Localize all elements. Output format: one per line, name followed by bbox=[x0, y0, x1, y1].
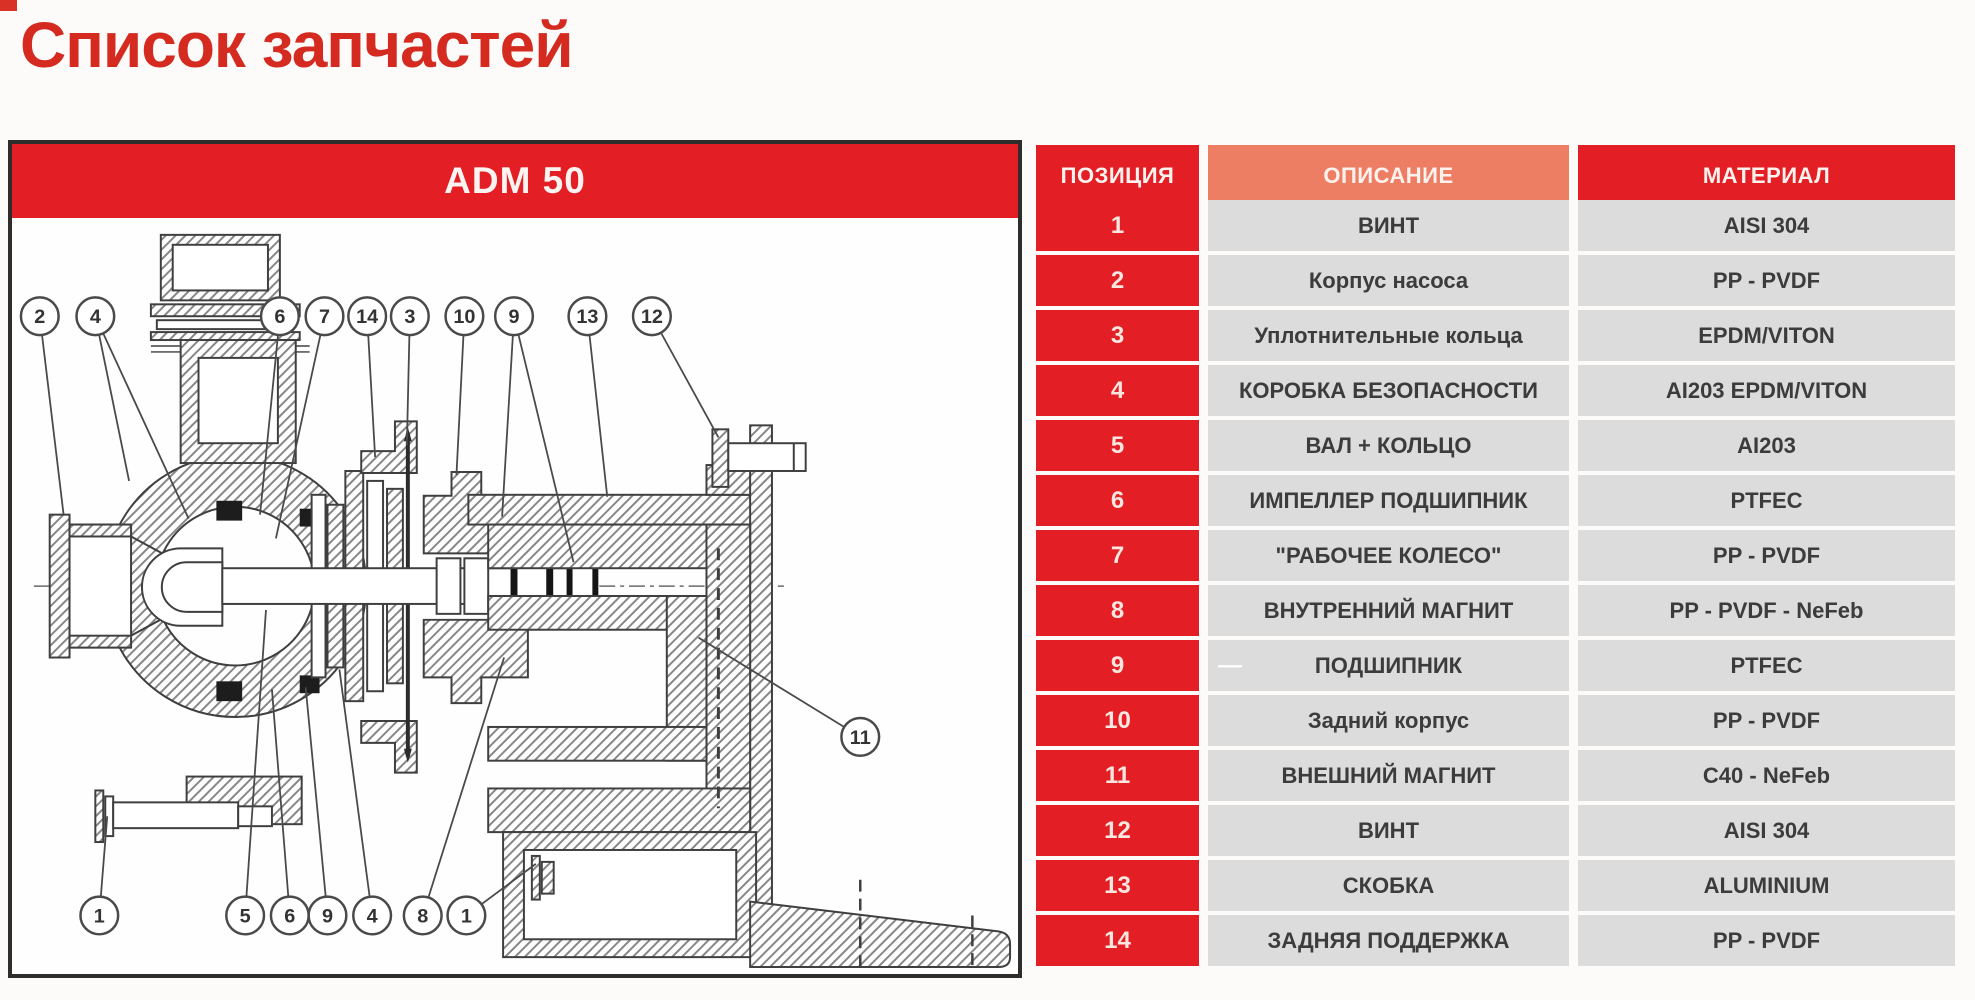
svg-text:10: 10 bbox=[453, 306, 475, 328]
position-cell: 7 bbox=[1036, 530, 1199, 581]
description-cell: ВНЕШНИЙ МАГНИТ bbox=[1208, 750, 1569, 801]
material-cell: PTFEC bbox=[1578, 640, 1955, 691]
material-cell: PTFEC bbox=[1578, 475, 1955, 526]
callout-10: 10 bbox=[446, 297, 484, 475]
description-cell: Задний корпус bbox=[1208, 695, 1569, 746]
pump-model-label: ADM 50 bbox=[444, 160, 586, 202]
callout-12: 12 bbox=[633, 297, 718, 437]
svg-text:2: 2 bbox=[34, 306, 45, 328]
material-cell: AI203 EPDM/VITON bbox=[1578, 365, 1955, 416]
svg-text:12: 12 bbox=[641, 306, 663, 328]
material-cell: PP - PVDF bbox=[1578, 255, 1955, 306]
svg-text:6: 6 bbox=[274, 306, 285, 328]
position-cell: 10 bbox=[1036, 695, 1199, 746]
description-cell: ВИНТ bbox=[1208, 200, 1569, 251]
description-cell: Уплотнительные кольца bbox=[1208, 310, 1569, 361]
position-cell: 8 bbox=[1036, 585, 1199, 636]
callout-2: 2 bbox=[21, 297, 64, 514]
svg-text:3: 3 bbox=[404, 306, 415, 328]
svg-text:1: 1 bbox=[461, 905, 472, 927]
callout-13: 13 bbox=[569, 297, 608, 496]
position-cell: 5 bbox=[1036, 420, 1199, 471]
material-cell: EPDM/VITON bbox=[1578, 310, 1955, 361]
description-cell: "РАБОЧЕЕ КОЛЕСО" bbox=[1208, 530, 1569, 581]
callout-9: 9 bbox=[306, 687, 347, 934]
corner-mark bbox=[0, 0, 17, 11]
parts-table: ПОЗИЦИЯ ОПИСАНИЕ МАТЕРИАЛ 1ВИНТAISI 3042… bbox=[1036, 145, 1955, 966]
position-cell: 6 bbox=[1036, 475, 1199, 526]
diagram-panel-body: 24671431091312111569481 bbox=[12, 218, 1018, 974]
position-cell: 11 bbox=[1036, 750, 1199, 801]
material-cell: AI203 bbox=[1578, 420, 1955, 471]
material-cell: C40 - NeFeb bbox=[1578, 750, 1955, 801]
position-cell: 1 bbox=[1036, 200, 1199, 251]
material-cell: PP - PVDF - NeFeb bbox=[1578, 585, 1955, 636]
svg-text:7: 7 bbox=[319, 306, 330, 328]
position-cell: 12 bbox=[1036, 805, 1199, 856]
description-cell: ИМПЕЛЛЕР ПОДШИПНИК bbox=[1208, 475, 1569, 526]
diagram-panel-header: ADM 50 bbox=[12, 144, 1018, 218]
column-header-description: ОПИСАНИЕ bbox=[1208, 145, 1569, 207]
svg-text:6: 6 bbox=[284, 905, 295, 927]
svg-text:14: 14 bbox=[356, 306, 378, 328]
description-cell: ПОДШИПНИК— bbox=[1208, 640, 1569, 691]
description-cell: Корпус насоса bbox=[1208, 255, 1569, 306]
callout-4: 4 bbox=[339, 669, 391, 934]
column-header-material: МАТЕРИАЛ bbox=[1578, 145, 1955, 207]
position-cell: 4 bbox=[1036, 365, 1199, 416]
svg-text:8: 8 bbox=[417, 905, 428, 927]
page-title: Список запчастей bbox=[20, 8, 573, 82]
inlet-barrel bbox=[70, 525, 132, 648]
svg-text:4: 4 bbox=[90, 306, 101, 328]
description-cell: КОРОБКА БЕЗОПАСНОСТИ bbox=[1208, 365, 1569, 416]
description-cell: СКОБКА bbox=[1208, 860, 1569, 911]
diagram-panel: ADM 50 bbox=[8, 140, 1022, 978]
svg-text:5: 5 bbox=[240, 905, 251, 927]
row-marker: — bbox=[1218, 652, 1242, 680]
material-cell: ALUMINIUM bbox=[1578, 860, 1955, 911]
mounting-foot bbox=[750, 902, 1010, 967]
inlet-flange bbox=[50, 515, 70, 658]
material-cell: PP - PVDF bbox=[1578, 695, 1955, 746]
position-cell: 14 bbox=[1036, 915, 1199, 966]
material-cell: AISI 304 bbox=[1578, 200, 1955, 251]
svg-text:4: 4 bbox=[367, 905, 378, 927]
svg-text:1: 1 bbox=[94, 905, 105, 927]
material-cell: PP - PVDF bbox=[1578, 530, 1955, 581]
description-cell: ЗАДНЯЯ ПОДДЕРЖКА bbox=[1208, 915, 1569, 966]
page: { "page": { "title": "Список запчастей" … bbox=[0, 0, 1975, 1000]
pump-cross-section-diagram: 24671431091312111569481 bbox=[12, 218, 1018, 974]
description-cell: ВНУТРЕННИЙ МАГНИТ bbox=[1208, 585, 1569, 636]
callout-14: 14 bbox=[348, 297, 386, 457]
column-header-position: ПОЗИЦИЯ bbox=[1036, 145, 1199, 207]
description-cell: ВАЛ + КОЛЬЦО bbox=[1208, 420, 1569, 471]
svg-text:13: 13 bbox=[576, 306, 598, 328]
callout-5: 5 bbox=[226, 610, 266, 934]
svg-text:11: 11 bbox=[850, 727, 871, 749]
position-cell: 9 bbox=[1036, 640, 1199, 691]
description-cell: ВИНТ bbox=[1208, 805, 1569, 856]
material-cell: PP - PVDF bbox=[1578, 915, 1955, 966]
bracket-top-beam bbox=[468, 495, 756, 525]
svg-text:9: 9 bbox=[322, 905, 333, 927]
material-cell: AISI 304 bbox=[1578, 805, 1955, 856]
position-cell: 13 bbox=[1036, 860, 1199, 911]
adapter-bolt bbox=[532, 856, 540, 900]
position-cell: 2 bbox=[1036, 255, 1199, 306]
position-cell: 3 bbox=[1036, 310, 1199, 361]
svg-text:9: 9 bbox=[508, 306, 519, 328]
